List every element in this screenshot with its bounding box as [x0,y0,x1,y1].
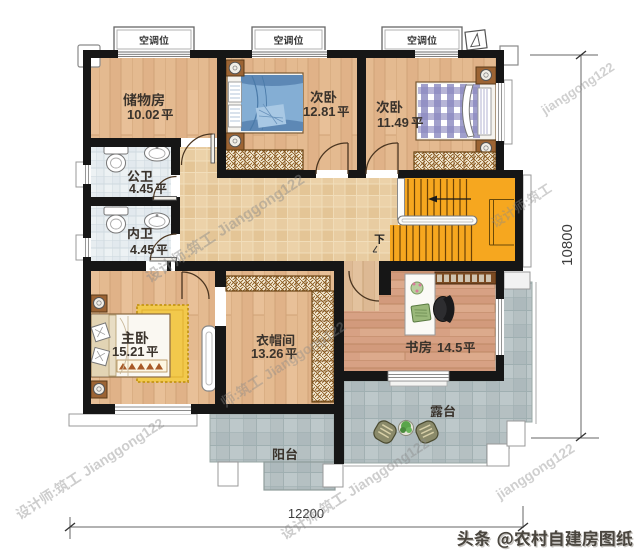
svg-text:12.81: 12.81 [303,104,336,119]
svg-text:14.5: 14.5 [437,340,462,355]
svg-text:15.21: 15.21 [112,344,145,359]
svg-text:4.45: 4.45 [130,243,154,257]
svg-text:10800: 10800 [559,224,576,266]
svg-text:11.49: 11.49 [377,115,409,130]
svg-text:10.02: 10.02 [127,107,160,122]
svg-text:4.45: 4.45 [129,182,153,196]
